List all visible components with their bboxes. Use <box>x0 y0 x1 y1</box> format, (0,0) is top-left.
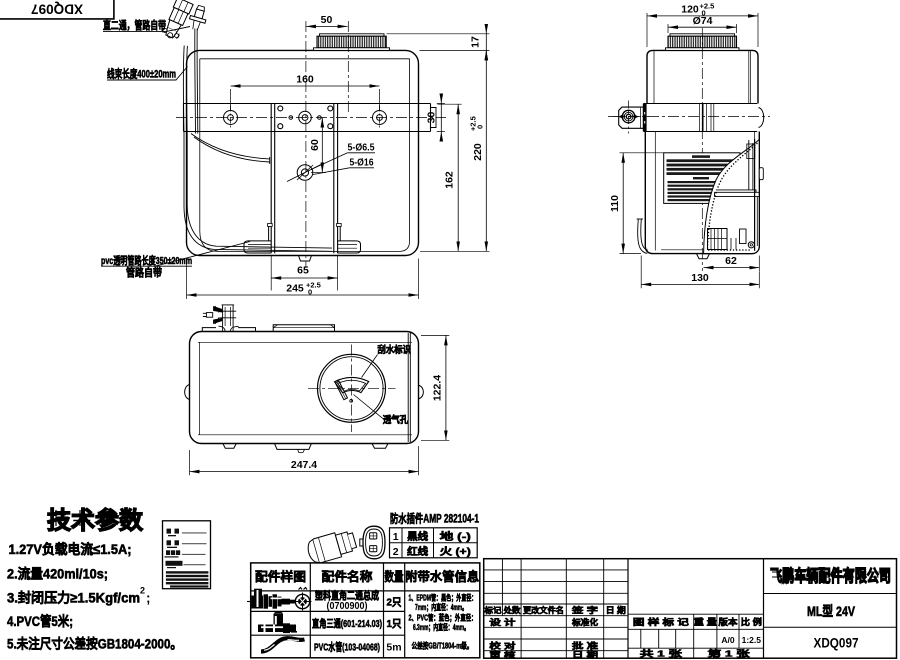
svg-text:刮水标识: 刮水标识 <box>378 344 412 356</box>
svg-text:防水插件AMP 282104-1: 防水插件AMP 282104-1 <box>390 512 479 526</box>
svg-text:标准化: 标准化 <box>571 617 598 627</box>
svg-text:50: 50 <box>321 14 333 26</box>
svg-text:5-Ø6.5: 5-Ø6.5 <box>348 142 375 154</box>
svg-text:标记: 标记 <box>483 605 501 615</box>
svg-text:公差按GB/T1804-m级。: 公差按GB/T1804-m级。 <box>412 641 473 651</box>
svg-text:5.未注尺寸公差按GB1804-2000。: 5.未注尺寸公差按GB1804-2000。 <box>7 636 182 652</box>
svg-text:红线: 红线 <box>407 545 428 558</box>
svg-text:160: 160 <box>296 74 314 86</box>
svg-text:配件样图: 配件样图 <box>255 569 306 584</box>
svg-text:0: 0 <box>308 288 312 297</box>
svg-text:Ø74: Ø74 <box>693 15 713 27</box>
svg-text:批 准: 批 准 <box>572 640 598 650</box>
svg-text:245: 245 <box>286 283 304 295</box>
svg-text:ML型 24V: ML型 24V <box>807 603 855 619</box>
svg-text:162: 162 <box>444 171 456 189</box>
svg-text:7mm；内直径：4mm。: 7mm；内直径：4mm。 <box>415 602 467 613</box>
svg-text:1:2.5: 1:2.5 <box>742 635 762 645</box>
svg-text:110: 110 <box>609 195 621 212</box>
svg-text:(0700900): (0700900) <box>327 601 368 612</box>
svg-text:XDQ097: XDQ097 <box>814 636 859 651</box>
svg-text:247.4: 247.4 <box>291 459 317 471</box>
svg-text:数量: 数量 <box>384 569 404 584</box>
svg-text:处数: 处数 <box>502 605 521 615</box>
svg-text:飞鹏车辆配件有限公司: 飞鹏车辆配件有限公司 <box>770 566 891 586</box>
svg-text:2只: 2只 <box>387 597 402 609</box>
svg-text:更改文件名: 更改文件名 <box>523 605 564 615</box>
svg-text:A/0: A/0 <box>721 635 735 645</box>
svg-text:;: ; <box>146 591 151 606</box>
svg-text:5m: 5m <box>386 642 401 654</box>
svg-text:1只: 1只 <box>387 618 402 630</box>
svg-text:122.4: 122.4 <box>432 375 444 401</box>
svg-text:线束长度400±20mm: 线束长度400±20mm <box>107 67 176 81</box>
svg-text:1: 1 <box>393 531 399 543</box>
svg-text:日 期: 日 期 <box>572 650 598 660</box>
svg-text:4.PVC管5米;: 4.PVC管5米; <box>7 613 73 629</box>
svg-text:XDQ097: XDQ097 <box>31 1 83 16</box>
svg-text:3.封闭压力≥1.5Kgf/cm: 3.封闭压力≥1.5Kgf/cm <box>7 590 140 606</box>
svg-text:PVC水管(103-04068): PVC水管(103-04068) <box>314 641 380 654</box>
svg-text:1、EPDM管：黑色；外直径：: 1、EPDM管：黑色；外直径： <box>409 593 477 604</box>
svg-text:直角三通(601-214.03): 直角三通(601-214.03) <box>312 617 382 630</box>
svg-text:0: 0 <box>476 125 485 129</box>
svg-text:2.流量420ml/10s;: 2.流量420ml/10s; <box>7 566 108 582</box>
svg-text:审 核: 审 核 <box>489 650 515 660</box>
svg-text:管路自带: 管路自带 <box>126 266 162 279</box>
svg-text:设 计: 设 计 <box>489 617 515 627</box>
svg-text:120: 120 <box>681 3 699 15</box>
svg-text:黑线: 黑线 <box>407 530 428 543</box>
svg-text:65: 65 <box>297 265 309 277</box>
svg-text:130: 130 <box>691 272 709 284</box>
svg-text:共 1 张: 共 1 张 <box>640 649 683 659</box>
svg-text:日 期: 日 期 <box>606 605 626 615</box>
svg-text:透气孔: 透气孔 <box>383 414 409 426</box>
svg-text:重 量: 重 量 <box>694 617 718 627</box>
svg-text:火 (+): 火 (+) <box>440 546 471 558</box>
svg-text:220: 220 <box>472 143 484 161</box>
svg-text:配件名称: 配件名称 <box>322 569 373 584</box>
svg-text:5-Ø16: 5-Ø16 <box>350 157 374 169</box>
svg-text:17: 17 <box>470 36 482 48</box>
svg-text:6.3mm；内直径：4mm。: 6.3mm；内直径：4mm。 <box>413 622 469 633</box>
svg-text:1.27V负载电流≤1.5A;: 1.27V负载电流≤1.5A; <box>9 541 132 557</box>
svg-text:校 对: 校 对 <box>489 640 515 650</box>
svg-text:直二通，管路自带: 直二通，管路自带 <box>103 18 166 32</box>
svg-text:62: 62 <box>725 255 737 267</box>
svg-text:30: 30 <box>426 112 438 124</box>
svg-text:图 样 标 记: 图 样 标 记 <box>633 617 690 627</box>
svg-text:签 字: 签 字 <box>571 605 598 615</box>
svg-text:60: 60 <box>309 139 321 151</box>
svg-text:第 1 张: 第 1 张 <box>708 649 751 659</box>
svg-text:比 例: 比 例 <box>741 617 763 627</box>
svg-text:版本: 版本 <box>717 617 738 627</box>
svg-text:2: 2 <box>393 546 399 558</box>
svg-text:2、PVC管：蓝色；外直径：: 2、PVC管：蓝色；外直径： <box>409 613 477 624</box>
svg-text:地 (-): 地 (-) <box>440 530 471 543</box>
svg-text:2: 2 <box>140 586 145 596</box>
svg-text:附带水管信息: 附带水管信息 <box>405 569 479 584</box>
